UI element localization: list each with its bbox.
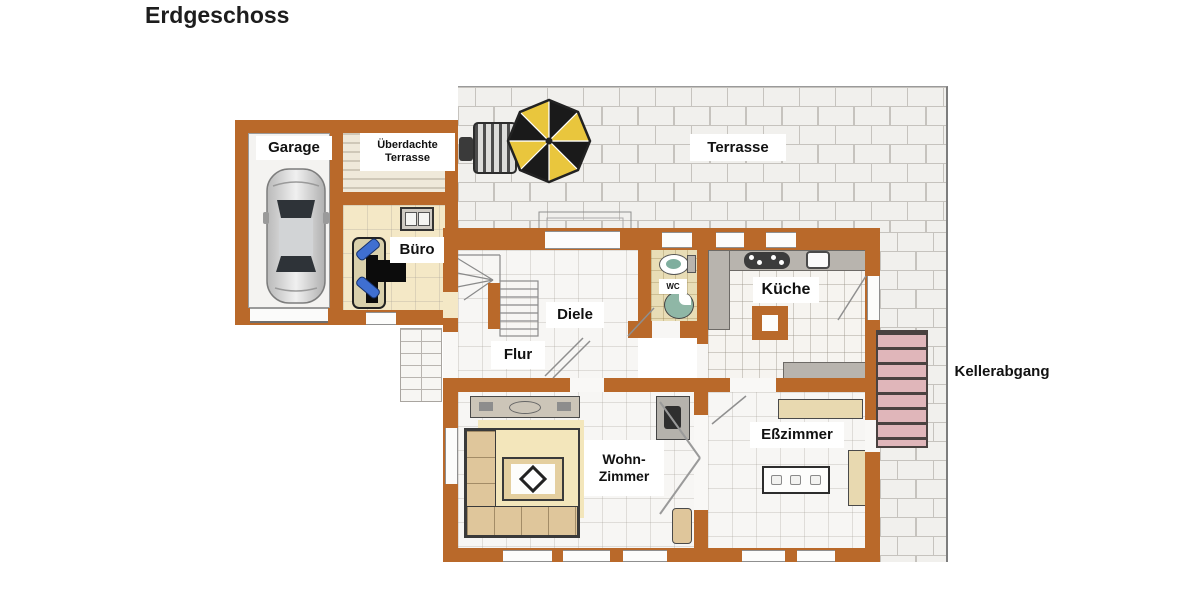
bottom-window-5 — [797, 550, 835, 562]
bottom-window-3 — [623, 550, 667, 562]
dining-table-icon — [762, 466, 830, 494]
kitchen-sink-icon — [806, 251, 830, 269]
office-top-wall — [343, 192, 458, 205]
entrance-door — [443, 332, 458, 378]
corridor-label: Flur — [491, 341, 545, 369]
kitchen-counter-left — [708, 250, 730, 330]
basement-stairs-label: Kellerabgang — [947, 361, 1057, 383]
stove-icon — [744, 252, 790, 269]
dining-sideboard-icon — [778, 399, 863, 419]
desk-return-icon — [378, 260, 406, 282]
kitchen-label: Küche — [753, 277, 819, 303]
sink-icon — [664, 291, 694, 319]
bottom-window-2 — [563, 550, 610, 562]
car-icon — [263, 166, 329, 306]
grill-handle-icon — [459, 137, 473, 161]
hallway-label: Diele — [546, 302, 604, 328]
living-room-label: Wohn- Zimmer — [584, 440, 664, 496]
side-table-icon — [672, 508, 692, 544]
covered-terrace-top-wall — [343, 120, 458, 133]
cabinet-icon — [848, 450, 866, 506]
garage-label: Garage — [256, 136, 332, 160]
house-left-wall — [443, 228, 458, 562]
toilet-icon — [659, 254, 689, 275]
floor-plan: Erdgeschoss — [0, 0, 1200, 600]
kitchen-door — [697, 344, 708, 378]
wc-door — [652, 321, 680, 338]
office-hall-door — [443, 292, 458, 318]
terrace-door — [545, 231, 620, 249]
dining-room-label: Eßzimmer — [750, 422, 844, 448]
toilet-cistern — [687, 255, 696, 273]
wc-right-wall — [697, 250, 708, 330]
stair-icon — [450, 248, 540, 340]
tv-icon — [656, 396, 690, 440]
garage-door — [250, 308, 328, 323]
wc-window — [662, 232, 692, 248]
kitchen-terrace-door — [867, 276, 880, 320]
covered-terrace-label: Überdachte Terrasse — [360, 133, 455, 171]
basement-stair-icon — [876, 330, 928, 448]
kitchen-island-icon — [752, 306, 788, 340]
office-bottom-window — [366, 312, 396, 325]
coffee-table-icon — [502, 457, 564, 501]
wc-left-wall — [638, 250, 651, 330]
sofa-icon — [466, 506, 578, 536]
living-room-door — [570, 378, 604, 392]
entrance-steps-icon — [400, 328, 442, 402]
living-room-window-left — [445, 428, 458, 484]
kitchen-window-2 — [766, 232, 796, 248]
printer-icon — [400, 207, 434, 231]
bottom-window-1 — [503, 550, 552, 562]
sideboard-icon — [470, 396, 580, 418]
living-dining-opening — [694, 415, 708, 510]
kitchen-window-1 — [716, 232, 744, 248]
wc-label: WC — [659, 279, 687, 294]
bottom-window-4 — [742, 550, 785, 562]
dining-door — [730, 378, 776, 392]
terrace-label: Terrasse — [690, 134, 786, 161]
umbrella-icon — [505, 97, 593, 185]
office-label: Büro — [390, 237, 444, 263]
page-title: Erdgeschoss — [145, 2, 289, 29]
